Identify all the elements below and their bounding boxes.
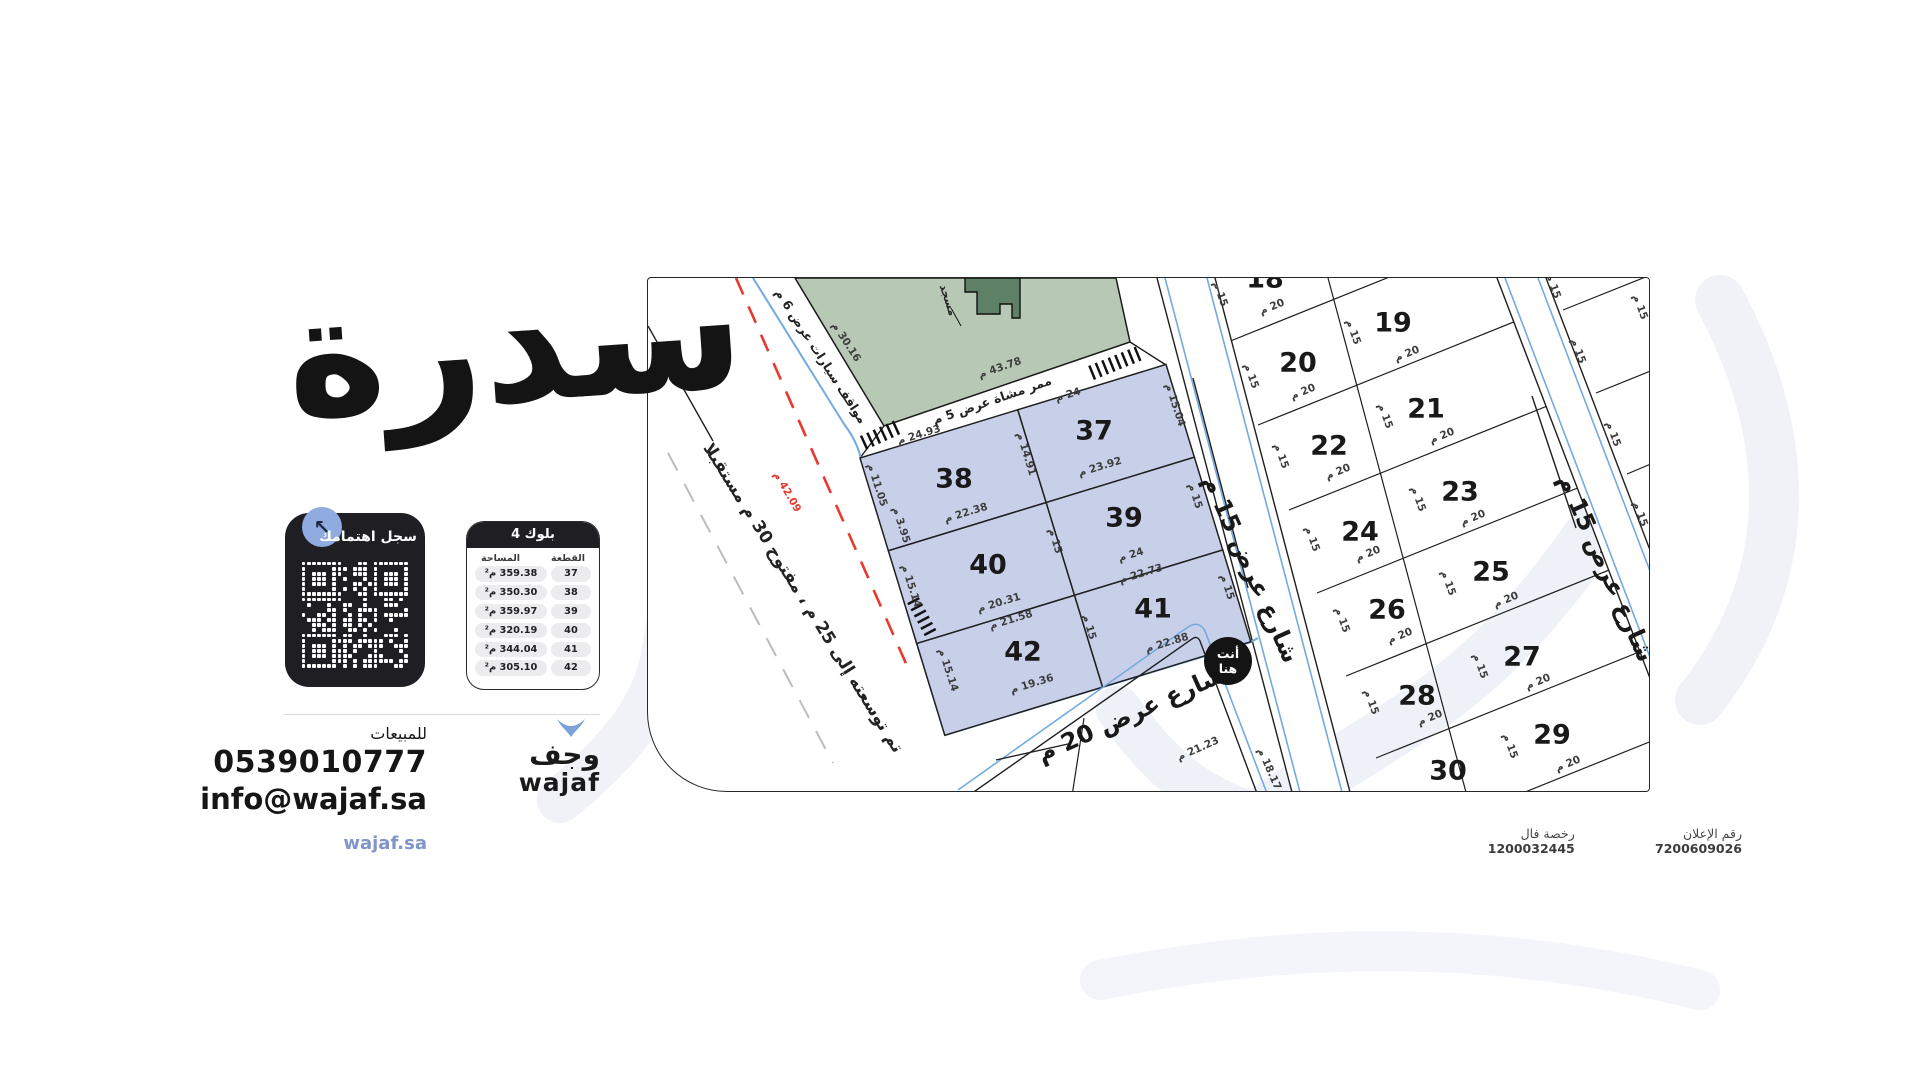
col-plot-header: القطعة bbox=[551, 553, 585, 564]
you-are-here-line2: هنا bbox=[1219, 661, 1237, 676]
map-label: ممر مشاة عرض 5 م bbox=[931, 373, 1054, 428]
map-label: 24 م bbox=[1054, 385, 1082, 404]
table-header-row: القطعة المساحة bbox=[467, 548, 599, 566]
ad-number-item: رقم الإعلان 7200609026 bbox=[1603, 826, 1742, 856]
map-label: 15 م bbox=[1361, 688, 1381, 717]
map-label: 15 م bbox=[1045, 527, 1064, 555]
map-label: 20 م bbox=[1428, 426, 1457, 447]
map-label: 20 م bbox=[1492, 590, 1521, 611]
map-label: 43.78 م bbox=[977, 355, 1023, 381]
map-label: 15 م bbox=[1603, 420, 1623, 449]
map-label: 23.92 م bbox=[1077, 455, 1123, 480]
license-label: رخصة فال bbox=[1521, 826, 1575, 841]
map-label: 3.95 م bbox=[890, 505, 913, 544]
map-label: 40 bbox=[969, 550, 1007, 581]
plot-number-cell: 41 bbox=[551, 642, 591, 658]
map-label: 15 م bbox=[1408, 485, 1428, 514]
map-label: 22.73 م bbox=[1118, 562, 1164, 587]
map-label: 11.05 م bbox=[864, 462, 889, 508]
logo-arabic: وجف bbox=[498, 740, 600, 770]
table-row: 41 344.04 م² bbox=[475, 642, 591, 658]
map-label: 15 م bbox=[1438, 569, 1458, 598]
map-label: 18.17 م bbox=[1254, 746, 1283, 792]
map-label: 42 bbox=[1004, 637, 1042, 668]
map-label: شارع عرض 15 م bbox=[1197, 471, 1305, 667]
license-footer: رقم الإعلان 7200609026 رخصة فال 12000324… bbox=[1440, 826, 1742, 856]
map-label: 15.14 م bbox=[898, 563, 923, 609]
map-label: 14.91 م bbox=[1014, 431, 1039, 477]
map-labels: شارع عرض 15 مشارع عرض 15 مشارع عرض 20 مت… bbox=[648, 278, 1649, 791]
map-label: 22 bbox=[1310, 431, 1348, 462]
map-label: شارع عرض 15 م bbox=[1552, 470, 1650, 666]
map-label: 15 م bbox=[1343, 318, 1363, 347]
ad-number-value: 7200609026 bbox=[1655, 841, 1742, 856]
map-label: 15 م bbox=[1217, 573, 1236, 601]
plot-area-cell: 344.04 م² bbox=[475, 642, 547, 658]
plot-number-cell: 39 bbox=[551, 604, 591, 620]
plot-area-cell: 350.30 م² bbox=[475, 585, 547, 601]
map-label: 21.23 م bbox=[1175, 734, 1221, 763]
map-label: 42.09 م bbox=[771, 470, 804, 515]
plot-number-cell: 40 bbox=[551, 623, 591, 639]
map-label: 21.58 م bbox=[988, 608, 1034, 633]
plot-area-cell: 359.38 م² bbox=[475, 566, 547, 582]
map-label: 24 bbox=[1341, 517, 1379, 548]
table-row: 40 320.19 م² bbox=[475, 623, 591, 639]
map-label: 41 bbox=[1134, 594, 1172, 625]
plot-number-cell: 38 bbox=[551, 585, 591, 601]
qr-card: ↖ سجل اهتمامك bbox=[285, 513, 425, 687]
table-row: 42 305.10 م² bbox=[475, 660, 591, 676]
map-label: 20 م bbox=[1324, 462, 1353, 483]
map-label: 20 م bbox=[1386, 626, 1415, 647]
map-label: 20 bbox=[1279, 348, 1317, 379]
map-label: 20 م bbox=[1289, 382, 1318, 403]
map-label: 28 bbox=[1398, 681, 1436, 712]
map-label: 15 م bbox=[1568, 337, 1588, 366]
you-are-here-badge: أنت هنا bbox=[1204, 637, 1252, 685]
map-label: 27 bbox=[1503, 642, 1541, 673]
license-item: رخصة فال 1200032445 bbox=[1440, 826, 1575, 856]
map-label: 19 bbox=[1374, 308, 1412, 339]
map-label: 38 bbox=[935, 464, 973, 495]
site-map: شارع عرض 15 مشارع عرض 15 مشارع عرض 20 مت… bbox=[647, 277, 1650, 792]
map-label: 15 م bbox=[1470, 652, 1490, 681]
map-label: 19.36 م bbox=[1009, 672, 1055, 697]
map-label: 15 م bbox=[1241, 362, 1261, 391]
map-label: 20 م bbox=[1459, 508, 1488, 529]
map-label: 25 bbox=[1472, 557, 1510, 588]
phone-number: 0539010777 bbox=[180, 745, 427, 781]
map-label: 15 م bbox=[1630, 500, 1650, 529]
map-label: 20 م bbox=[1524, 672, 1553, 693]
map-label: 20 م bbox=[1258, 297, 1287, 318]
map-label: 24.93 م bbox=[896, 423, 942, 448]
map-label: 20 م bbox=[1393, 344, 1422, 365]
wajaf-logo: وجف wajaf bbox=[498, 718, 600, 796]
map-label: 39 bbox=[1105, 503, 1143, 534]
plot-area-cell: 359.97 م² bbox=[475, 604, 547, 620]
table-row: 38 350.30 م² bbox=[475, 585, 591, 601]
block-table: بلوك 4 القطعة المساحة 37 359.38 م² 38 35… bbox=[466, 521, 600, 690]
qr-code bbox=[301, 561, 409, 669]
map-label: 30.16 م bbox=[829, 320, 863, 364]
plot-area-cell: 320.19 م² bbox=[475, 623, 547, 639]
divider-line bbox=[284, 714, 600, 715]
plot-area-cell: 305.10 م² bbox=[475, 660, 547, 676]
map-label: 15 م bbox=[1079, 613, 1098, 641]
map-label: 20 م bbox=[1554, 754, 1583, 775]
map-label: 22.88 م bbox=[1144, 631, 1190, 656]
qr-title: سجل اهتمامك bbox=[285, 529, 425, 545]
sales-label: للمبيعات bbox=[180, 724, 427, 743]
email-address: info@wajaf.sa bbox=[180, 781, 427, 817]
col-area-header: المساحة bbox=[481, 553, 520, 564]
plot-number-cell: 37 bbox=[551, 566, 591, 582]
map-label: 15 م bbox=[1630, 293, 1650, 322]
map-label: مسجد bbox=[937, 283, 959, 318]
license-value: 1200032445 bbox=[1488, 841, 1575, 856]
map-label: 15 م bbox=[1543, 277, 1563, 300]
flyer-canvas: سدرة ↖ سجل اهتمامك بلوك 4 القطعة المساحة… bbox=[0, 0, 1920, 1080]
contact-block: للمبيعات 0539010777 info@wajaf.sa wajaf.… bbox=[180, 724, 427, 854]
map-label: 15 م bbox=[1271, 442, 1291, 471]
logo-latin: wajaf bbox=[498, 770, 600, 796]
map-label: 24 م bbox=[1117, 545, 1145, 564]
map-label: 15.04 م bbox=[1162, 382, 1187, 428]
map-label: 15 م bbox=[1302, 525, 1322, 554]
map-label: 15 م bbox=[1210, 280, 1230, 309]
map-label: 15 م bbox=[1375, 402, 1395, 431]
plot-number-cell: 42 bbox=[551, 660, 591, 676]
table-row: 39 359.97 م² bbox=[475, 604, 591, 620]
bird-icon bbox=[556, 718, 586, 738]
block-table-title: بلوك 4 bbox=[467, 522, 599, 548]
map-label: 26 bbox=[1368, 595, 1406, 626]
map-label: 21 bbox=[1407, 394, 1445, 425]
map-label: 18 bbox=[1246, 277, 1284, 295]
map-label: 30 bbox=[1429, 756, 1467, 787]
map-label: 15 م bbox=[1500, 732, 1520, 761]
map-label: 23 bbox=[1441, 477, 1479, 508]
map-label: 29 bbox=[1533, 720, 1571, 751]
map-label: 22.38 م bbox=[943, 501, 989, 526]
map-label: 15.14 م bbox=[935, 647, 960, 693]
map-label: 37 bbox=[1075, 416, 1113, 447]
table-row: 37 359.38 م² bbox=[475, 566, 591, 582]
ad-number-label: رقم الإعلان bbox=[1683, 826, 1742, 841]
table-rows: 37 359.38 م² 38 350.30 م² 39 359.97 م² 4… bbox=[467, 566, 599, 676]
map-label: 15 م bbox=[1332, 606, 1352, 635]
you-are-here-line1: أنت bbox=[1217, 646, 1239, 661]
website-link: wajaf.sa bbox=[180, 833, 427, 854]
